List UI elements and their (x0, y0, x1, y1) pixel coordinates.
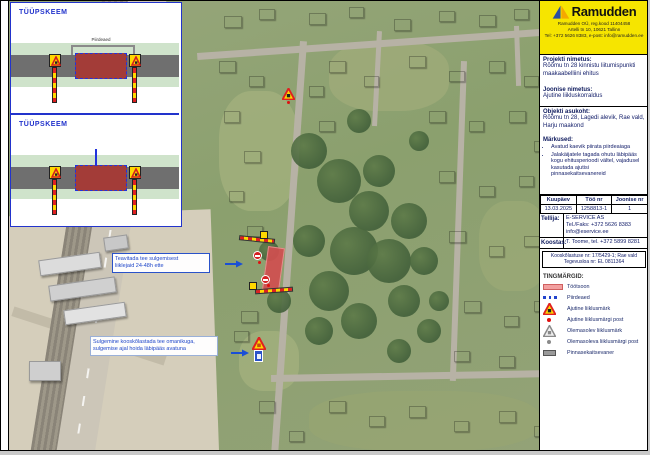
temp-post-dot-icon (547, 318, 551, 322)
map-decor-shape (387, 339, 411, 363)
pointer-arrow-icon (231, 349, 249, 357)
roadworks-sign-plate-icon (49, 54, 61, 67)
map-decor-shape (409, 131, 429, 151)
map-note-closure-line1: Teavitada tee sulgemisest (115, 256, 207, 263)
map-decor-shape (309, 86, 324, 97)
map-decor-shape (259, 401, 275, 413)
project-name-line2: maakaabelliini ehitus (543, 71, 645, 79)
meta-header-worknr: Töö nr (576, 196, 612, 205)
project-section: Projekti nimetus: Rõõmu tn 28 kinnistu l… (540, 55, 648, 85)
existing-post-dot-icon (547, 340, 551, 344)
map-decor-shape (244, 151, 261, 163)
map-decor-shape (293, 225, 325, 257)
map-decor-shape (234, 331, 249, 342)
map-decor-shape (319, 121, 335, 132)
map-decor-shape (289, 431, 304, 442)
title-block-panel: Ramudden Ramudden OÜ, reg.kood 11404458 … (539, 1, 648, 450)
map-decor-shape (363, 155, 395, 187)
legend-label: Olemasolev liiklusmärk (567, 328, 622, 334)
drawing-name: Ajutine liikluskorraldus (543, 93, 645, 101)
author-info: T. Toome, tel. +372 5899 8281 (564, 238, 648, 248)
map-decor-shape (479, 15, 496, 27)
scheme-title: TÜÜPSKEEM (19, 121, 67, 128)
location-line1: Rõõmu tn 28, Lagedi alevik, Rae vald, (543, 115, 645, 123)
temp-sign-post-dot (287, 101, 290, 104)
map-decor-shape (489, 61, 505, 73)
map-decor-shape (29, 361, 61, 381)
scheme-work-area (75, 165, 127, 191)
legend-item-fence: Piirdeaed (543, 293, 648, 303)
typical-scheme-bottom: TÜÜPSKEEM (11, 115, 179, 225)
scheme-title: TÜÜPSKEEM (19, 9, 67, 16)
approval-box: Kooskõlastuse nr: 17/5429-1; Rae vald Te… (542, 251, 646, 268)
map-decor-shape (394, 19, 411, 31)
location-section: Objekti asukoht: Rõõmu tn 28, Lagedi ale… (540, 107, 648, 135)
meta-header-drawingnr: Joonise nr (612, 196, 648, 205)
brand-name: Ramudden (572, 4, 637, 19)
map-decor-shape (388, 285, 420, 317)
map-decor-shape (449, 231, 466, 243)
map-decor-shape (410, 247, 438, 275)
map-decor-shape (329, 401, 346, 413)
temp-sign-icon (543, 303, 556, 315)
no-entry-sign-south (261, 275, 270, 284)
work-zone-swatch-icon (543, 284, 563, 290)
map-decor-shape (349, 191, 389, 231)
legend-label: Piirdeaed (567, 295, 590, 301)
roadworks-plate-south (249, 282, 257, 290)
map-decor-shape (259, 9, 275, 20)
map-decor-shape (409, 406, 426, 418)
aerial-map: Teavitada tee sulgemisest liiklejaid 24-… (8, 1, 540, 450)
info-plate-sign (254, 350, 263, 362)
author-row: Koostas: T. Toome, tel. +372 5899 8281 (540, 237, 648, 249)
pointer-arrow-icon (225, 260, 243, 268)
ground-mat-swatch-icon (543, 350, 556, 356)
temp-sign-post-dot (267, 284, 270, 287)
roadworks-warning-sign-icon (282, 88, 295, 100)
map-decor-shape (469, 121, 484, 132)
location-line2: Harju maakond (543, 123, 645, 131)
map-decor-shape (241, 311, 258, 323)
map-decor-shape (369, 416, 385, 427)
notes-label: Märkused: (543, 137, 645, 143)
note-item: Avatud kaevik piirata piirdeaiaga (551, 144, 645, 151)
striped-pole (132, 179, 137, 215)
scheme-fence-bracket (71, 45, 135, 55)
map-decor-shape (514, 9, 529, 20)
map-decor-shape (489, 246, 504, 257)
map-decor-shape (499, 411, 516, 423)
map-decor-shape (329, 61, 346, 73)
map-note-coordination: Sulgemine kooskõlastada tee omanikuga, s… (90, 336, 218, 356)
roadworks-sign-plate-icon (129, 166, 141, 179)
map-decor-shape (509, 111, 526, 123)
map-decor-shape (347, 109, 371, 133)
map-decor-shape (417, 319, 441, 343)
client-row: Tellija: E-SERVICE AS Tel./Faks: +372 56… (540, 213, 648, 238)
map-decor-shape (329, 41, 449, 111)
map-decor-shape (519, 176, 534, 187)
map-decor-shape (454, 421, 469, 432)
client-info: E-SERVICE AS Tel./Faks: +372 5626 8383 i… (564, 214, 648, 237)
legend-label: Ajutine liiklusmärk (567, 306, 610, 312)
map-decor-shape (454, 351, 470, 362)
map-decor-shape (305, 317, 333, 345)
map-decor-shape (224, 111, 240, 123)
ramudden-logo-icon (552, 4, 570, 19)
no-entry-sign-north (253, 251, 262, 260)
legend-item-workzone: Töötsoon (543, 282, 648, 292)
project-name-line1: Rõõmu tn 28 kinnistu liitumispunkti (543, 63, 645, 71)
legend-item-temp-sign: Ajutine liiklusmärk (543, 304, 648, 314)
map-decor-shape (450, 61, 467, 381)
map-decor-shape (224, 16, 242, 28)
legend-label: Olemasoleva liiklusmärgi post (567, 339, 638, 345)
map-decor-shape (449, 71, 465, 82)
meta-table: Kuupäev Töö nr Joonise nr 13.03.2025 125… (540, 195, 648, 214)
note-item: Jalakäijatele tagada ohutu läbipääs kogu… (551, 152, 645, 178)
scheme-sign-post (49, 54, 63, 106)
map-decor-shape (429, 291, 449, 311)
striped-pole (132, 67, 137, 103)
contact-line: Tel: +372 5626 8383, e-post: info@ramudd… (542, 33, 646, 39)
scheme-dimension-line (95, 149, 97, 166)
approval-line2: Tegevusloa nr: EL 0811364 (544, 259, 644, 266)
company-contact: Ramudden OÜ, reg.kood 11404458 Artelli t… (542, 21, 646, 40)
map-decor-shape (429, 111, 446, 123)
map-note-coordination-line1: Sulgemine kooskõlastada tee omanikuga, (93, 339, 215, 346)
map-decor-shape (309, 13, 326, 25)
author-label: Koostas: (540, 238, 564, 248)
legend-item-ground-mat: Pinnasekaitsevaner (543, 348, 648, 358)
map-decor-shape (349, 7, 364, 18)
scheme-fence-label: Piirdeaed (71, 37, 131, 42)
temp-sign-post-dot (258, 261, 261, 264)
scheme-sign-post (49, 166, 63, 218)
notes-section: Märkused: Avatud kaevik piirata piirdeai… (540, 135, 648, 195)
legend-label: Pinnasekaitsevaner (567, 350, 614, 356)
legend-item-temp-post: Ajutine liiklusmärgi post (543, 315, 648, 325)
map-note-closure-line2: liiklejaid 24-48h ette (115, 263, 207, 270)
scheme-work-area (75, 53, 127, 79)
map-decor-shape (309, 271, 349, 311)
legend-item-existing-sign: Olemasolev liiklusmärk (543, 326, 648, 336)
map-decor-shape (341, 303, 377, 339)
client-label: Tellija: (540, 214, 564, 237)
client-line: info@eservice.ee (566, 229, 646, 236)
map-decor-shape (271, 370, 540, 382)
striped-pole (52, 67, 57, 103)
logo-box: Ramudden Ramudden OÜ, reg.kood 11404458 … (540, 1, 648, 55)
map-decor-shape (464, 301, 481, 313)
map-decor-shape (499, 356, 515, 368)
roadworks-sign-plate-icon (129, 54, 141, 67)
plan-sheet: Teavitada tee sulgemisest liiklejaid 24-… (0, 0, 648, 451)
scheme-sign-post (129, 166, 143, 218)
client-line: Tel./Faks: +372 5626 8383 (566, 222, 646, 229)
map-decor-shape (409, 56, 426, 68)
map-decor-shape (504, 316, 519, 327)
map-decor-shape (524, 76, 539, 87)
map-decor-shape (524, 236, 540, 247)
map-note-coordination-line2: sulgemise ajal hoida läbipääs avatuna (93, 346, 215, 353)
legend-title: TINGMÄRGID: (543, 274, 648, 280)
map-decor-shape (229, 191, 244, 202)
roadworks-plate-north (260, 231, 268, 239)
legend-label: Ajutine liiklusmärgi post (567, 317, 623, 323)
client-line: E-SERVICE AS (566, 215, 646, 222)
map-decor-shape (439, 11, 455, 22)
map-decor-shape (391, 203, 427, 239)
existing-sign-icon (543, 325, 556, 337)
roadworks-sign-plate-icon (49, 166, 61, 179)
map-decor-shape (367, 239, 411, 283)
map-decor-shape (439, 171, 455, 183)
map-decor-shape (479, 186, 495, 197)
typical-scheme-top: Piirdeaed TÜÜPSKEEM (11, 3, 179, 115)
scheme-sign-post (129, 54, 143, 106)
meta-header-date: Kuupäev (541, 196, 577, 205)
striped-pole (52, 179, 57, 215)
drawing-section: Joonise nimetus: Ajutine liikluskorraldu… (540, 85, 648, 107)
map-decor-shape (249, 76, 264, 87)
map-decor-shape (219, 61, 236, 73)
typical-scheme-panel: Piirdeaed TÜÜPSKEEM (10, 2, 182, 227)
roadworks-warning-sign-icon (252, 337, 266, 350)
map-note-closure: Teavitada tee sulgemisest liiklejaid 24-… (112, 253, 210, 273)
fence-dots-icon (543, 296, 557, 299)
map-decor-shape (364, 76, 379, 87)
map-decor-shape (291, 133, 327, 169)
legend-label: Töötsoon (567, 284, 589, 290)
legend-item-existing-post: Olemasoleva liiklusmärgi post (543, 337, 648, 347)
